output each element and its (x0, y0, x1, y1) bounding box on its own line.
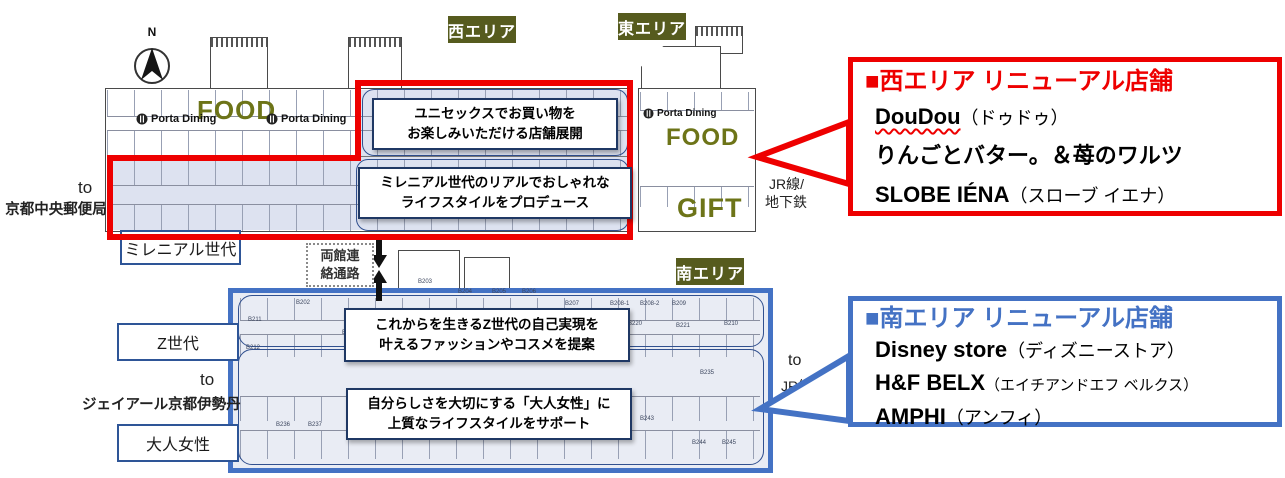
dining-icon (136, 113, 148, 125)
callout-line: ライフスタイルをプロデュース (401, 193, 589, 213)
to-jr-lower-line2: 地下鉄 (774, 396, 816, 416)
compass-north-icon: N (125, 22, 185, 94)
to-isetan-name: ジェイアール京都伊勢丹 (82, 393, 241, 414)
store-name: Disney store (875, 337, 1007, 362)
porta-dining-label-1: Porta Dining (136, 113, 216, 125)
room-label: B209 (672, 301, 686, 307)
to-post-office-name: 京都中央郵便局 (0, 198, 112, 219)
callout-line: 上質なライフスタイルをサポート (388, 414, 591, 434)
corridor-line: 絡通路 (320, 265, 359, 283)
room-label: B208-2 (640, 301, 659, 307)
porta-floor-map: N FOOD Porta Dining Porta Dining Porta D… (0, 0, 1285, 478)
porta-dining-text: Porta Dining (151, 113, 216, 125)
gift-label-east: GIFT (677, 193, 743, 224)
south-panel-title: ■南エリア リニューアル店舗 (865, 304, 1265, 334)
room-label: B208-1 (610, 301, 629, 307)
west-building-tower-1 (210, 37, 268, 90)
store-line: H&F BELX（エイチアンドエフ ベルクス） (865, 367, 1265, 401)
callout-line: 叶えるファッションやコスメを提案 (379, 335, 595, 355)
badge-west-area: 西エリア (448, 16, 516, 43)
compass-n-label: N (148, 25, 157, 39)
food-label-east: FOOD (666, 124, 739, 152)
to-jr-lower-to: to (788, 352, 801, 370)
dining-icon (266, 113, 278, 125)
callout-line: 自分らしさを大切にする「大人女性」に (367, 394, 610, 414)
to-isetan-to: to (200, 370, 214, 390)
room-label: B204 (458, 289, 472, 295)
room-label: B245 (722, 440, 736, 446)
porta-dining-label-east: Porta Dining (643, 108, 716, 119)
store-name: H&F BELX (875, 370, 985, 395)
south-renewal-panel: ■南エリア リニューアル店舗 Disney store（ディズニーストア） H&… (848, 296, 1282, 427)
store-reading: （ドゥドゥ） (961, 108, 1069, 128)
store-reading: （ディズニーストア） (1007, 341, 1185, 361)
room-label: B220 (628, 321, 642, 327)
south-annex-block-2 (464, 257, 510, 290)
room-label: B210 (724, 321, 738, 327)
corridor-box: 両館連 絡通路 (306, 243, 374, 287)
tag-millennial: ミレニアル世代 (120, 230, 241, 265)
tag-otona: 大人女性 (117, 424, 239, 462)
store-reading: （エイチアンドエフ ベルクス） (985, 377, 1198, 394)
room-label: B237 (308, 422, 322, 428)
callout-line: これからを生きるZ世代の自己実現を (375, 315, 599, 335)
room-label: B205 (492, 289, 506, 295)
room-label: B243 (640, 416, 654, 422)
store-reading: （アンフィ） (946, 408, 1052, 428)
dining-icon (643, 108, 654, 119)
room-label: B203 (418, 279, 432, 285)
strip-divider (107, 156, 628, 157)
store-line: DouDou（ドゥドゥ） (865, 98, 1265, 137)
tower-hatch (349, 38, 401, 47)
store-name: SLOBE IÉNA (875, 182, 1009, 207)
room-label: B221 (676, 323, 690, 329)
tag-genz: Z世代 (117, 323, 239, 361)
room-label: B207 (565, 301, 579, 307)
tower-hatch (211, 38, 267, 47)
tower-hatch (696, 27, 742, 36)
room-label: B202 (296, 300, 310, 306)
east-building-upper (641, 46, 721, 92)
porta-dining-text: Porta Dining (657, 108, 716, 119)
store-name: DouDou (875, 104, 961, 129)
room-label: B235 (700, 370, 714, 376)
store-line: SLOBE IÉNA（スローブ イエナ） (865, 176, 1265, 215)
west-renewal-panel: ■西エリア リニューアル店舗 DouDou（ドゥドゥ） りんごとバター。＆苺のワ… (848, 57, 1282, 216)
callout-unisex: ユニセックスでお買い物を お楽しみいただける店舗展開 (372, 98, 618, 150)
callout-millennial: ミレニアル世代のリアルでおしゃれな ライフスタイルをプロデュース (358, 167, 632, 219)
room-label: B236 (276, 422, 290, 428)
callout-genz: これからを生きるZ世代の自己実現を 叶えるファッションやコスメを提案 (344, 308, 630, 362)
to-jr-lower-line1: JR線/ (781, 376, 816, 396)
store-name: AMPHI (875, 404, 946, 429)
store-name: りんごとバター。＆苺のワルツ (875, 143, 1183, 168)
west-panel-title: ■西エリア リニューアル店舗 (865, 65, 1265, 98)
to-jr-upper-to: to (773, 148, 786, 166)
porta-dining-label-2: Porta Dining (266, 113, 346, 125)
room-label: B244 (692, 440, 706, 446)
callout-line: ユニセックスでお買い物を (414, 104, 576, 124)
store-reading: （スローブ イエナ） (1009, 186, 1175, 206)
callout-otona: 自分らしさを大切にする「大人女性」に 上質なライフスタイルをサポート (346, 388, 632, 440)
callout-line: ミレニアル世代のリアルでおしゃれな (380, 173, 609, 193)
room-label: B206 (522, 289, 536, 295)
callout-line: お楽しみいただける店舗展開 (407, 124, 583, 144)
badge-south-area: 南エリア (676, 258, 744, 285)
to-jr-upper-line1: JR線/ (769, 174, 804, 194)
room-label: B212 (246, 345, 260, 351)
store-line: りんごとバター。＆苺のワルツ (865, 137, 1265, 176)
porta-dining-text: Porta Dining (281, 113, 346, 125)
badge-east-area: 東エリア (618, 13, 686, 40)
store-line: AMPHI（アンフィ） (865, 401, 1265, 434)
room-label: B211 (248, 317, 262, 323)
corridor-line: 両館連 (320, 247, 359, 265)
west-building-tower-2 (348, 37, 402, 90)
to-jr-upper-line2: 地下鉄 (765, 192, 807, 212)
to-post-office-to: to (78, 178, 92, 198)
store-line: Disney store（ディズニーストア） (865, 334, 1265, 367)
